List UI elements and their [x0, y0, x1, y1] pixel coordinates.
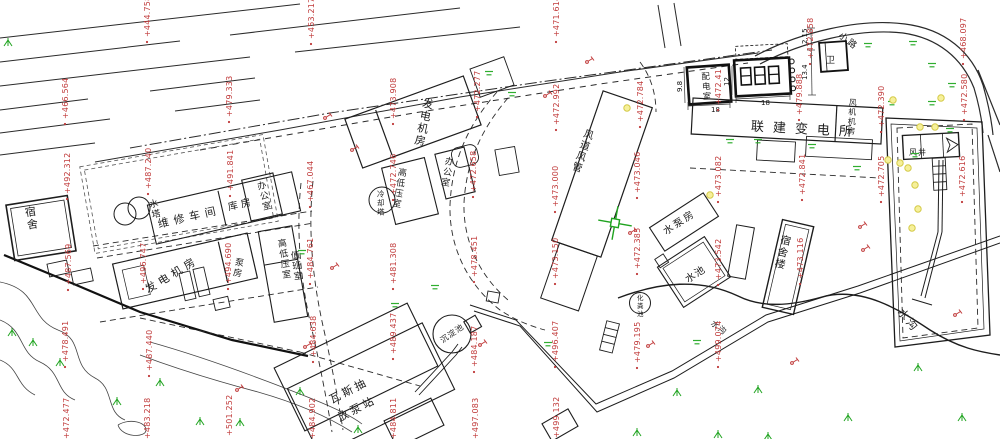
elevation-label: +483.218: [143, 398, 152, 439]
elevation-label: +473.000: [551, 166, 560, 213]
elevation-label: +472.277: [473, 71, 482, 118]
map-label: 泵房: [232, 257, 245, 280]
svg-text:+484.638: +484.638: [309, 316, 318, 357]
elevation-label: +479.333: [225, 76, 234, 123]
elevation-label: +484.187: [470, 326, 479, 373]
svg-text:+494.690: +494.690: [224, 243, 233, 284]
map-label: 联建变电所: [751, 119, 862, 141]
grass-icon: [485, 72, 493, 75]
map-label: 宿舍: [24, 204, 39, 232]
elevation-label: +481.308: [389, 243, 398, 290]
survey-cross: [595, 203, 634, 242]
svg-text:+499.074: +499.074: [714, 321, 723, 362]
tree-icon: [354, 425, 362, 433]
building-generator-center: [345, 76, 481, 168]
lamp-icon: [932, 124, 938, 130]
map-label: 风井: [909, 147, 927, 157]
grass-icon: [391, 304, 399, 307]
elevation-label: +472.616: [958, 156, 967, 203]
elevation-label: +472.385: [633, 228, 642, 275]
grass-icon: [431, 286, 439, 289]
elevation-label: +472.390: [877, 86, 886, 133]
elevation-label: +491.841: [226, 150, 235, 197]
svg-text:+492.312: +492.312: [63, 153, 72, 194]
pipeline: [415, 344, 462, 395]
tree-icon: [236, 418, 244, 426]
elevation-label: +467.044: [306, 161, 315, 208]
map-label: 水池: [682, 263, 708, 286]
elevation-label: +472.477: [62, 398, 71, 439]
site-plan: 宿舍水塔维修车间库房办公室发电机房泵房高低压室值班室发电机房高低压室办公室冷却塔…: [0, 0, 1000, 439]
elevation-label: +472.992: [552, 84, 561, 131]
svg-text:+479.195: +479.195: [633, 322, 642, 363]
light-symbol-layer: [624, 95, 944, 231]
elevation-label: +478.491: [61, 321, 70, 368]
grass-icon: [948, 84, 956, 87]
tree-icon: [296, 387, 304, 395]
pole-icon: [586, 57, 594, 64]
grass-icon: [928, 64, 936, 67]
svg-text:+478.451: +478.451: [470, 236, 479, 277]
tree-icon: [29, 338, 37, 346]
svg-text:发电机房: 发电机房: [413, 96, 434, 149]
elevation-label: +472.858: [806, 18, 815, 65]
svg-text:+473.082: +473.082: [714, 156, 723, 197]
svg-text:+468.097: +468.097: [959, 18, 968, 59]
railway-tracks: [0, 4, 520, 155]
elevation-label: +484.902: [308, 398, 317, 439]
lamp-icon: [909, 225, 915, 231]
svg-text:+484.761: +484.761: [306, 238, 315, 279]
svg-text:+471.614: +471.614: [552, 0, 561, 37]
pole-icon: [954, 310, 962, 317]
lamp-icon: [912, 182, 918, 188]
svg-text:+496.747: +496.747: [139, 243, 148, 284]
elevation-label: +444.758: [143, 0, 152, 43]
svg-text:+472.784: +472.784: [636, 81, 645, 122]
svg-text:+484.902: +484.902: [308, 398, 317, 439]
elevation-label: +472.746: [389, 154, 398, 201]
elevation-label: +473.908: [389, 78, 398, 125]
tree-icon: [4, 38, 12, 46]
grass-icon: [853, 167, 861, 170]
svg-text:+473.046: +473.046: [633, 152, 642, 193]
grass-icon: [726, 140, 734, 143]
svg-text:卫: 卫: [826, 56, 835, 66]
elevation-label: +473.082: [714, 156, 723, 203]
svg-text:+491.841: +491.841: [226, 150, 235, 191]
tree-icon: [633, 428, 641, 436]
dimension-label: 18: [761, 99, 770, 107]
svg-text:+472.705: +472.705: [877, 156, 886, 197]
svg-text:+499.132: +499.132: [552, 397, 561, 438]
elevation-label: +484.761: [306, 238, 315, 285]
map-label: 水沟: [895, 306, 922, 334]
tree-icon: [196, 417, 204, 425]
grass-icon: [928, 102, 936, 105]
svg-text:+453.217: +453.217: [307, 0, 316, 39]
map-label: 风道风管: [571, 128, 596, 175]
svg-text:配电室: 配电室: [701, 72, 712, 103]
svg-text:+472.277: +472.277: [473, 71, 482, 112]
svg-text:+497.083: +497.083: [471, 398, 480, 439]
map-label: 小路: [836, 29, 861, 52]
map-label: 发电机房: [142, 253, 201, 296]
elevation-label: +499.132: [552, 397, 561, 439]
map-label: 卫: [826, 56, 835, 66]
tree-icon: [8, 328, 16, 336]
elevation-label: +484.811: [389, 398, 398, 439]
svg-text:+472.858: +472.858: [806, 18, 815, 59]
grass-icon: [508, 93, 516, 96]
tree-icon: [113, 397, 121, 405]
elevation-label: +472.41: [714, 69, 723, 111]
map-label: 沉淀池: [438, 321, 466, 345]
svg-text:水沟: 水沟: [895, 306, 922, 334]
steps-ladder: [600, 321, 620, 353]
water-tower: [114, 197, 150, 225]
svg-text:办公室: 办公室: [440, 155, 455, 189]
tree-icon: [958, 413, 966, 421]
svg-text:+472.658: +472.658: [469, 151, 478, 192]
map-label: 发电机房: [413, 96, 434, 149]
grass-icon: [693, 341, 701, 344]
svg-text:+467.044: +467.044: [306, 161, 315, 202]
svg-text:维修车间: 维修车间: [156, 203, 222, 231]
svg-text:+444.758: +444.758: [143, 0, 152, 37]
elevation-label: +478.451: [470, 236, 479, 283]
annex-narrow: [728, 225, 755, 279]
svg-text:+496.407: +496.407: [551, 321, 560, 362]
shaft-annex: [932, 158, 947, 191]
svg-text:+472.390: +472.390: [877, 86, 886, 127]
tree-icon: [673, 388, 681, 396]
svg-text:+479.333: +479.333: [225, 76, 234, 117]
map-label: 办公室: [256, 179, 273, 213]
map-label: 配电室: [701, 72, 712, 103]
svg-text:+479.888: +479.888: [795, 74, 804, 115]
svg-text:+473.000: +473.000: [551, 166, 560, 207]
elevation-label: +473.150: [551, 238, 560, 285]
pole-icon: [479, 340, 487, 347]
lamp-icon: [897, 160, 903, 166]
svg-text:风井: 风井: [909, 147, 927, 157]
svg-text:风道风管: 风道风管: [571, 128, 596, 175]
map-label: 宿舍楼: [774, 233, 793, 272]
main-road: [95, 3, 772, 162]
tree-icon: [764, 432, 772, 439]
elevation-label: +471.614: [552, 0, 561, 43]
svg-text:+473.542: +473.542: [714, 239, 723, 280]
svg-text:+472.841: +472.841: [798, 154, 807, 195]
tree-icon: [914, 363, 922, 371]
elevation-label: +492.312: [63, 153, 72, 200]
pole-icon: [791, 358, 799, 365]
lamp-icon: [938, 95, 944, 101]
svg-text:+483.218: +483.218: [143, 398, 152, 439]
dimension-label: 12: [723, 77, 731, 86]
svg-text:+501.252: +501.252: [225, 395, 234, 436]
svg-text:泵房: 泵房: [232, 257, 245, 280]
elevation-label: +501.252: [225, 395, 234, 439]
elevation-label: +472.705: [877, 156, 886, 203]
grass-icon: [754, 140, 762, 143]
svg-text:+481.308: +481.308: [389, 243, 398, 284]
elevation-label: +487.240: [144, 148, 153, 195]
building-repair-workshop: [147, 172, 300, 244]
elevation-label: +496.747: [139, 243, 148, 290]
lamp-icon: [707, 192, 713, 198]
tree-icon: [844, 413, 852, 421]
svg-text:+472.992: +472.992: [552, 84, 561, 125]
elevation-label: +473.046: [633, 152, 642, 199]
map-label: 冷却塔: [377, 189, 385, 217]
elevation-label: +473.542: [714, 239, 723, 286]
svg-text:宿舍楼: 宿舍楼: [774, 233, 793, 272]
svg-text:+489.437: +489.437: [389, 313, 398, 354]
elevation-label: +472.784: [636, 81, 645, 128]
pole-icon: [862, 245, 870, 252]
pole-icon: [859, 222, 867, 229]
elevation-label: +472.841: [798, 154, 807, 201]
svg-text:+466.564: +466.564: [61, 78, 70, 119]
map-label: 化粪池: [637, 293, 644, 318]
svg-text:化粪池: 化粪池: [637, 293, 644, 318]
lamp-icon: [890, 97, 896, 103]
grass-icon: [909, 42, 917, 45]
svg-text:+473.116: +473.116: [796, 238, 805, 279]
svg-text:+484.187: +484.187: [470, 326, 479, 367]
svg-text:水池: 水池: [682, 263, 708, 286]
grass-icon: [864, 44, 872, 47]
svg-text:+472.580: +472.580: [960, 74, 969, 115]
elevation-label: +487.440: [145, 330, 154, 377]
map-label: 维修车间: [156, 203, 222, 231]
svg-text:办公室: 办公室: [256, 179, 273, 213]
tree-symbol-layer: [4, 38, 966, 439]
svg-text:冷却塔: 冷却塔: [377, 189, 385, 217]
elevation-label: +496.407: [551, 321, 560, 368]
pole-icon: [647, 341, 655, 348]
elevation-label: +494.690: [224, 243, 233, 290]
svg-text:+472.477: +472.477: [62, 398, 71, 439]
building-dormitory-tower: [762, 220, 813, 315]
lamp-icon: [885, 157, 891, 163]
svg-text:沉淀池: 沉淀池: [438, 321, 466, 345]
svg-text:+487.440: +487.440: [145, 330, 154, 371]
svg-text:+472.746: +472.746: [389, 154, 398, 195]
oil-tank-structure: [541, 243, 598, 311]
lamp-icon: [915, 206, 921, 212]
tree-icon: [156, 378, 164, 386]
svg-text:+472.385: +472.385: [633, 228, 642, 269]
svg-text:高低压室: 高低压室: [277, 237, 292, 281]
map-label: 高低压室: [277, 237, 292, 281]
building-gas-pump-station: [274, 303, 578, 439]
elevation-label: +497.083: [471, 398, 480, 439]
elevation-label: +453.217: [307, 0, 316, 45]
svg-text:+473.150: +473.150: [551, 238, 560, 279]
lamp-icon: [905, 165, 911, 171]
svg-text:+487.569: +487.569: [64, 244, 73, 285]
lamp-icon: [624, 105, 630, 111]
site-plan-drawing: 宿舍水塔维修车间库房办公室发电机房泵房高低压室值班室发电机房高低压室办公室冷却塔…: [0, 0, 1000, 439]
elevation-label: +484.638: [309, 316, 318, 363]
tree-icon: [754, 385, 762, 393]
svg-text:宿舍: 宿舍: [24, 204, 39, 232]
svg-text:+478.491: +478.491: [61, 321, 70, 362]
map-label: 库房: [227, 195, 255, 214]
elevation-label: +487.569: [64, 244, 73, 291]
tree-icon: [714, 430, 722, 438]
svg-text:联建变电所: 联建变电所: [751, 119, 862, 141]
elevation-label: +472.658: [469, 151, 478, 198]
yard-wall: [80, 135, 278, 254]
svg-text:+472.616: +472.616: [958, 156, 967, 197]
svg-text:库房: 库房: [227, 195, 255, 214]
dimension-label: 9.8: [676, 81, 684, 92]
svg-text:+472.41: +472.41: [714, 69, 723, 105]
elevation-label: +479.195: [633, 322, 642, 369]
svg-text:发电机房: 发电机房: [142, 253, 201, 296]
elevation-label: +473.116: [796, 238, 805, 285]
grass-icon: [946, 129, 954, 132]
elevation-label: +466.564: [61, 78, 70, 125]
svg-text:+473.908: +473.908: [389, 78, 398, 119]
lamp-icon: [917, 124, 923, 130]
elevation-label: +489.437: [389, 313, 398, 360]
elevation-label: +468.097: [959, 18, 968, 65]
elevation-label: +479.888: [795, 74, 804, 121]
elevation-label: +499.074: [714, 321, 723, 368]
pole-icon: [331, 263, 339, 270]
map-label: 办公室: [440, 155, 455, 189]
site-boundary: [4, 255, 308, 356]
grass-icon: [808, 145, 816, 148]
elevation-label: +472.580: [960, 74, 969, 121]
svg-text:+484.811: +484.811: [389, 398, 398, 439]
svg-text:小路: 小路: [836, 29, 861, 52]
svg-text:+487.240: +487.240: [144, 148, 153, 189]
